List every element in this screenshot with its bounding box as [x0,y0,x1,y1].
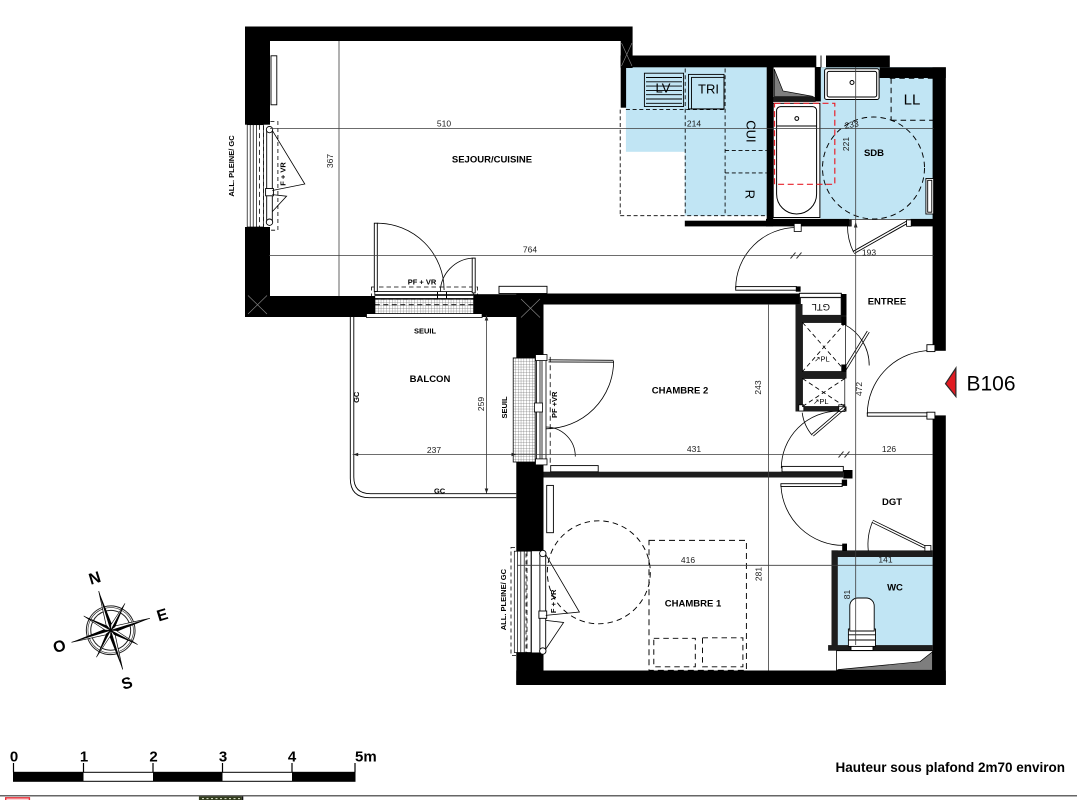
svg-text:CUI: CUI [744,120,759,142]
svg-text:BALCON: BALCON [410,374,451,385]
svg-text:F + VR: F + VR [278,162,287,186]
svg-text:243: 243 [753,380,763,394]
svg-text:281: 281 [754,567,764,581]
svg-text:SEJOUR/CUISINE: SEJOUR/CUISINE [452,155,532,166]
svg-text:259: 259 [476,397,486,411]
svg-text:WC: WC [887,583,903,594]
svg-text:141: 141 [878,555,892,565]
svg-text:Hauteur sous plafond 2m70 envi: Hauteur sous plafond 2m70 environ [835,760,1065,775]
svg-text:2: 2 [149,749,157,766]
svg-text:R: R [742,190,757,199]
svg-text:GTL: GTL [812,301,830,312]
svg-text:126: 126 [882,444,896,454]
svg-text:214: 214 [687,119,701,129]
svg-text:B106: B106 [967,373,1016,396]
svg-text:1: 1 [80,749,88,766]
svg-text:TRI: TRI [698,82,719,97]
svg-text:221: 221 [841,137,851,151]
svg-text:0: 0 [10,749,18,766]
svg-text:416: 416 [681,555,695,565]
svg-text:↗PL: ↗PL [813,397,828,406]
svg-text:PF +VR: PF +VR [550,391,559,418]
svg-text:PF + VR: PF + VR [408,278,437,287]
svg-text:237: 237 [427,445,441,455]
svg-text:CHAMBRE 2: CHAMBRE 2 [652,386,708,397]
svg-text:ALL. PLEINE/ GC: ALL. PLEINE/ GC [499,568,508,630]
svg-text:193: 193 [862,248,876,258]
svg-text:4: 4 [288,749,297,766]
svg-text:SEUIL: SEUIL [414,327,437,336]
svg-text:SEUIL: SEUIL [500,396,509,419]
svg-text:81: 81 [842,590,852,600]
svg-text:431: 431 [687,444,701,454]
svg-text:LV: LV [656,81,671,96]
svg-text:764: 764 [523,245,537,255]
svg-text:ALL. PLEINE/ GC: ALL. PLEINE/ GC [227,135,236,197]
svg-text:GC: GC [434,487,446,496]
svg-text:3: 3 [219,749,227,766]
svg-text:↗PL: ↗PL [814,355,829,364]
svg-text:DGT: DGT [882,497,902,508]
svg-text:472: 472 [854,382,864,396]
svg-text:LL: LL [904,92,921,109]
svg-text:SDB: SDB [864,148,884,159]
svg-text:510: 510 [437,119,451,129]
svg-text:367: 367 [325,154,335,168]
svg-text:CHAMBRE 1: CHAMBRE 1 [665,599,722,610]
svg-text:F + VR: F + VR [549,589,558,613]
svg-text:5m: 5m [355,749,377,766]
svg-text:ENTREE: ENTREE [868,297,907,308]
svg-text:GC: GC [352,391,361,403]
